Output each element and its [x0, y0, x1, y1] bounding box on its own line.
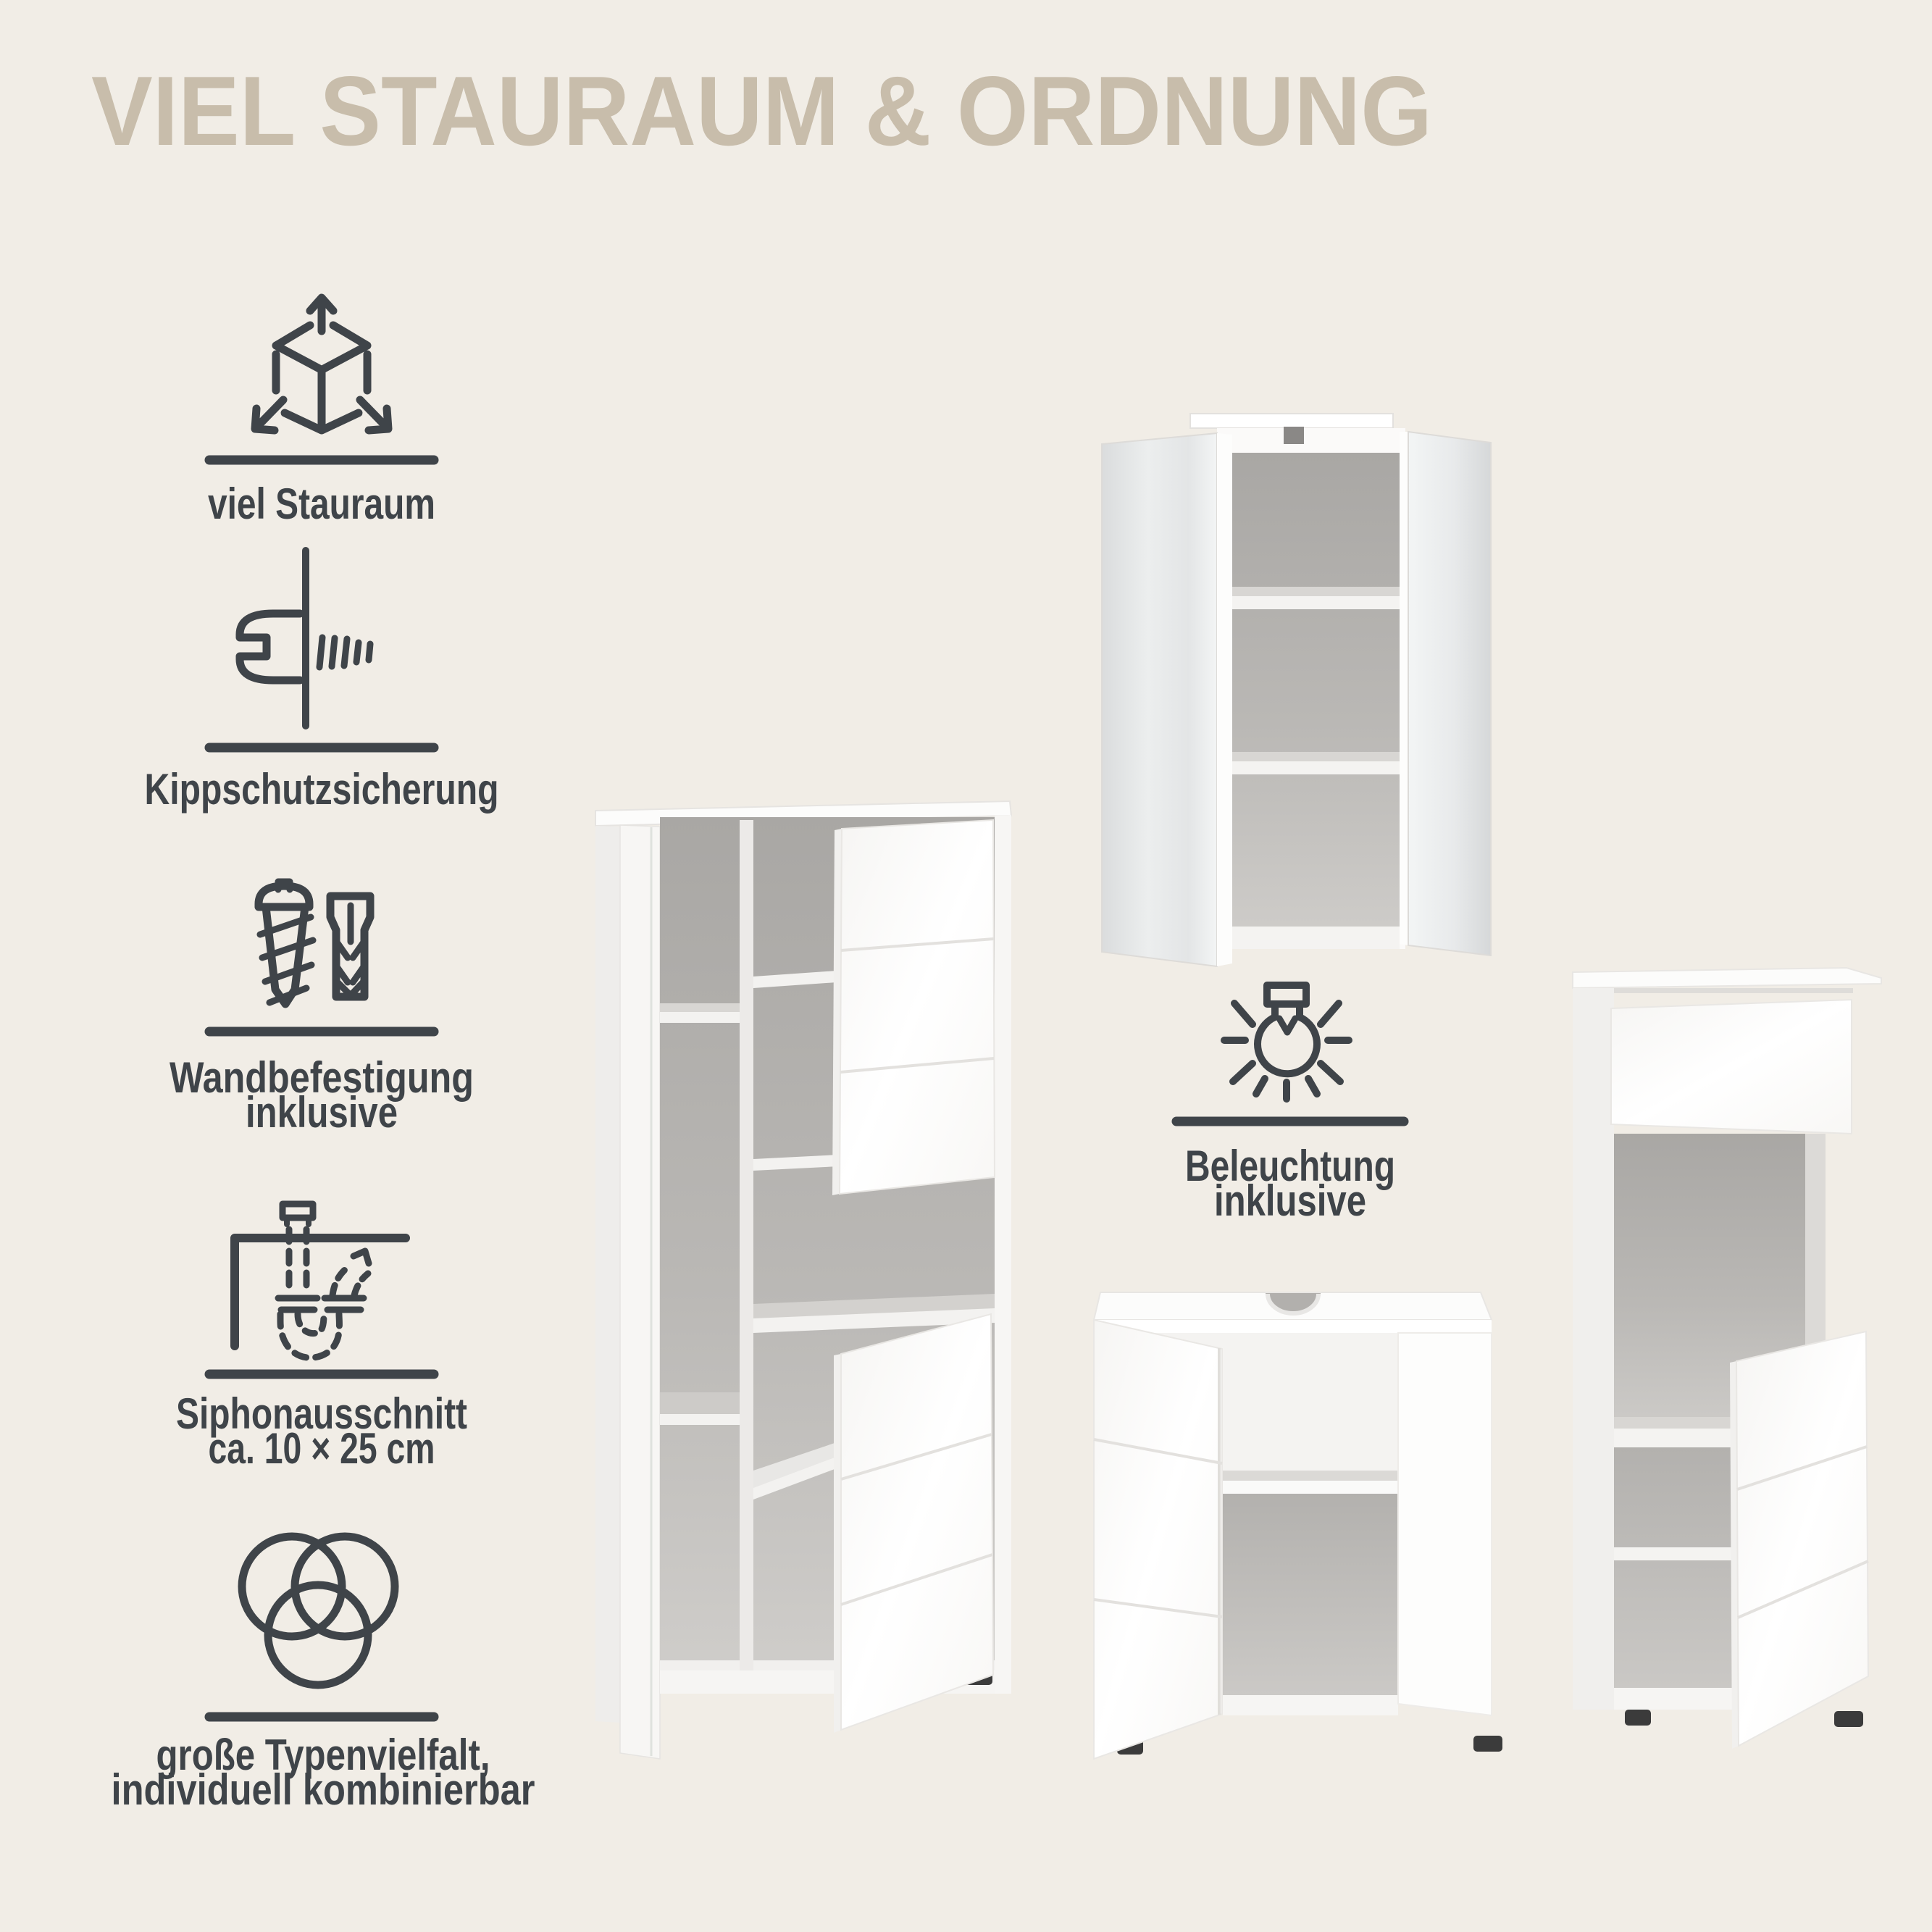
svg-text:Kippschutzsicherung: Kippschutzsicherung [145, 765, 499, 814]
svg-text:individuell kombinierbar: individuell kombinierbar [112, 1765, 535, 1814]
svg-text:inklusive: inklusive [1214, 1176, 1366, 1225]
svg-text:viel Stauraum: viel Stauraum [208, 480, 435, 528]
svg-text:inklusive: inklusive [246, 1088, 398, 1137]
svg-text:VIEL STAURAUM & ORDNUNG: VIEL STAURAUM & ORDNUNG [91, 56, 1432, 166]
svg-text:ca. 10 × 25 cm: ca. 10 × 25 cm [209, 1424, 435, 1473]
